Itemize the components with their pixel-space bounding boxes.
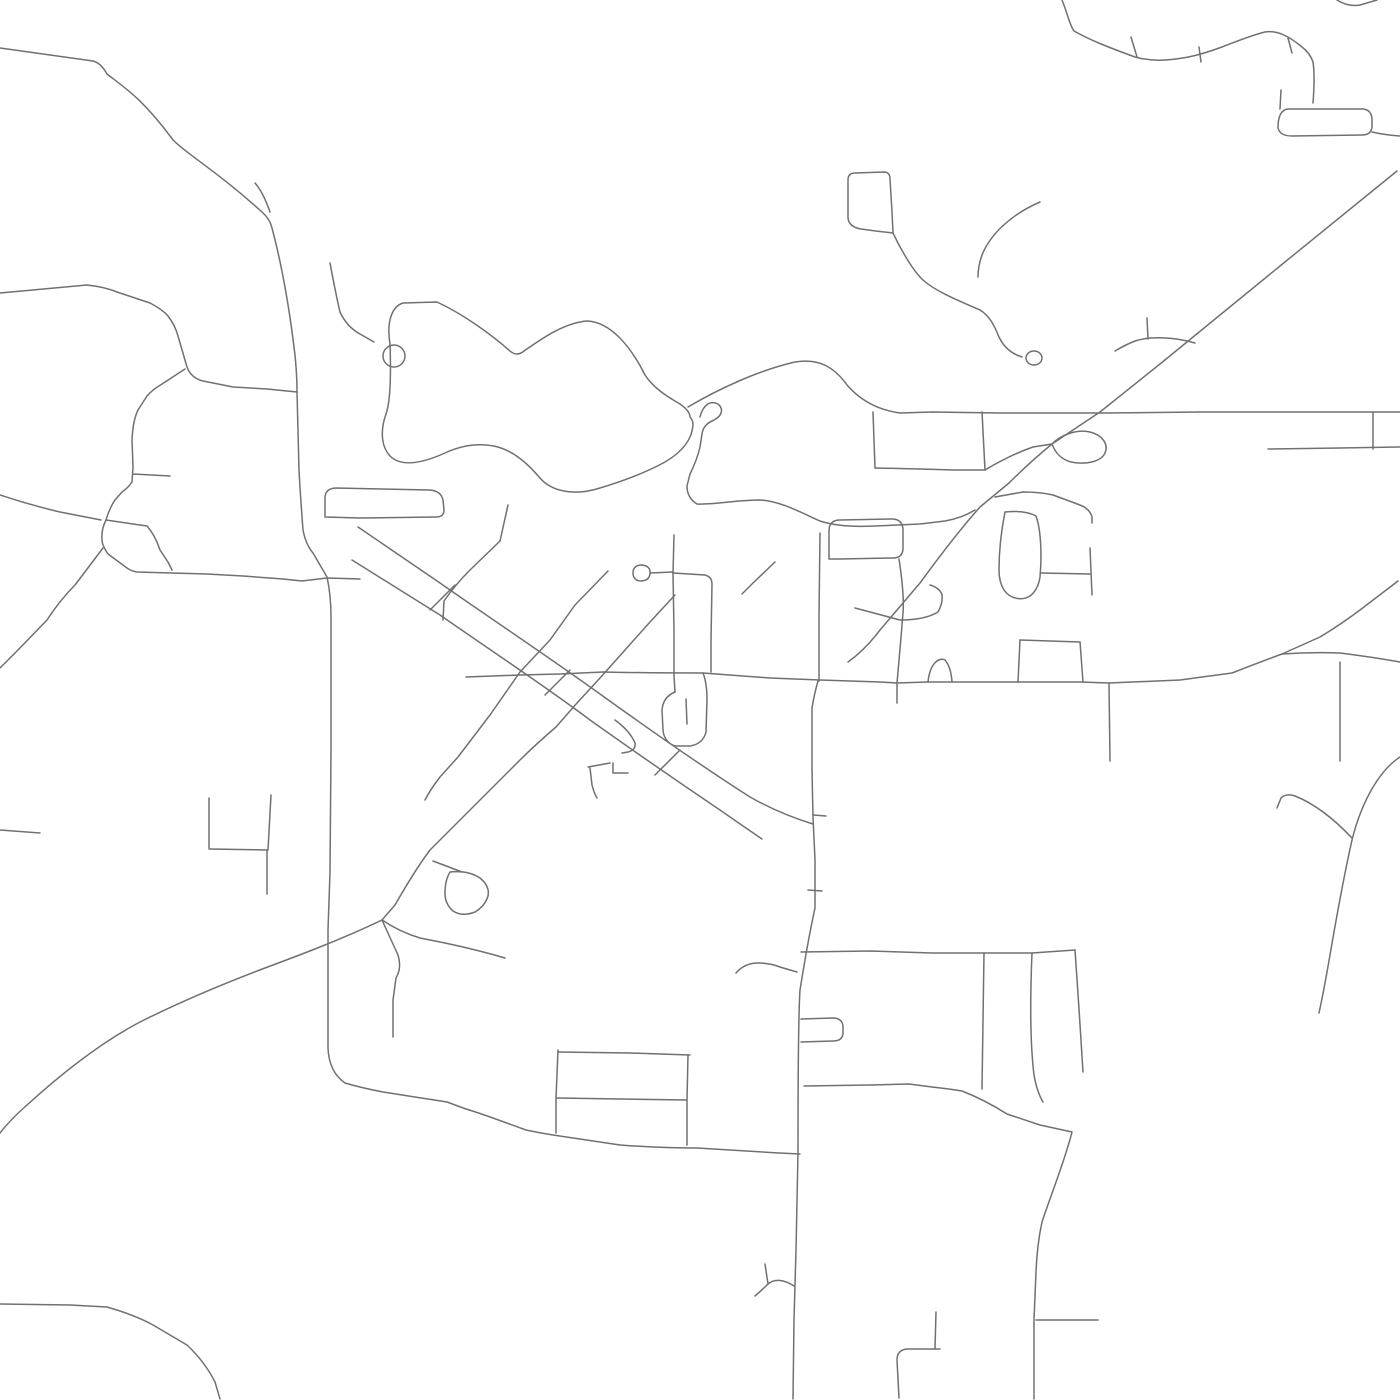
- p-loop-street: [662, 673, 707, 746]
- dead-end-curve-road: [978, 202, 1040, 277]
- wavy-road-tick-3: [1288, 38, 1292, 53]
- left-edge-lower-road: [0, 548, 103, 668]
- south-wiggle-street: [382, 920, 400, 1037]
- corridor-street-south: [352, 560, 762, 839]
- bottom-right-curve-road: [1319, 757, 1400, 1013]
- cross-street-2: [425, 571, 608, 800]
- se-blob-loop: [445, 872, 488, 915]
- se-blob-rung: [433, 861, 462, 872]
- lake-east-road: [688, 361, 1400, 413]
- sw-branch-road: [382, 920, 505, 958]
- top-wavy-road: [1062, 0, 1314, 103]
- ns-street-673: [673, 535, 675, 692]
- corridor-rung-3: [655, 750, 680, 775]
- junction-curve-road: [985, 444, 1052, 470]
- s-curve-end-circle: [1026, 351, 1042, 365]
- cross-street-1-ext: [500, 505, 508, 541]
- west-rounded-rect-loop: [325, 488, 444, 518]
- lake-loop-road: [382, 302, 693, 492]
- p-loop-stub: [686, 699, 687, 724]
- ring-oval-loop: [633, 565, 650, 581]
- vertical-rect-loop: [801, 1018, 843, 1042]
- block-right-street: [1080, 642, 1083, 682]
- north-vertical-street-b: [982, 412, 985, 470]
- north-vertical-street-a: [873, 412, 875, 468]
- top-right-arc: [1337, 0, 1377, 5]
- road-map-stage: [0, 0, 1400, 1400]
- vertical-stub-b: [808, 890, 822, 891]
- small-curl-street: [615, 720, 635, 753]
- main-east-west-road: [466, 653, 1400, 683]
- descender-street-3: [1075, 950, 1083, 1072]
- vertical-street-819: [819, 533, 820, 681]
- sw-bottom-road: [0, 1304, 220, 1399]
- arc-stub-street: [1147, 318, 1148, 339]
- culdesac-hook-street: [855, 585, 942, 620]
- junction-balloon-loop: [1052, 431, 1106, 463]
- ne-straight-highway: [848, 171, 1397, 662]
- cross-street-1: [443, 541, 500, 620]
- west-road: [0, 285, 297, 392]
- block-left-street: [1018, 640, 1020, 682]
- bottom-corner-road: [897, 1349, 940, 1398]
- south-block-vertical-1: [556, 1050, 558, 1133]
- wavy-road-tick-1: [1131, 37, 1137, 57]
- top-rect-loop: [848, 172, 893, 233]
- west-block-right-vertical: [268, 795, 271, 850]
- ring-access-street: [650, 572, 673, 573]
- west-block-horizontal: [209, 849, 267, 850]
- mid-north-south-street: [897, 559, 903, 703]
- se-merge-diagonal: [1282, 581, 1398, 654]
- bottom-right-hook: [1277, 795, 1352, 838]
- left-edge-upper-road: [0, 495, 101, 520]
- left-edge-stub: [0, 830, 40, 833]
- descender-street-2: [1031, 953, 1043, 1102]
- east-culdesac-loop: [999, 512, 1041, 599]
- main-north-south-road: [793, 681, 818, 1399]
- road-map-svg: [0, 0, 1400, 1400]
- wavy-road-tick-2: [1199, 47, 1201, 62]
- roadside-arch-loop: [928, 659, 952, 682]
- y-fork-branch: [755, 1280, 794, 1296]
- block-top-street: [1020, 640, 1080, 642]
- east-side-street: [995, 492, 1092, 523]
- ne-fragment-street: [742, 562, 775, 594]
- right-road-lower: [1268, 447, 1400, 449]
- f-street-top: [588, 763, 610, 767]
- west-stub-street: [133, 474, 170, 476]
- se-long-road: [804, 1084, 1072, 1399]
- south-stub-street: [1109, 683, 1110, 761]
- pentagon-inner-street: [106, 520, 172, 570]
- f-street-stem: [590, 768, 597, 798]
- sw-sweep-road: [0, 920, 382, 1133]
- ne-rect-loop: [1278, 109, 1372, 136]
- bottom-corner-tick: [935, 1312, 936, 1349]
- vertical-stub-a: [813, 815, 826, 816]
- f-street-arm: [613, 763, 628, 773]
- s-curve-road: [893, 233, 1022, 357]
- balloon-loop-street: [687, 403, 975, 527]
- east-loop-vertical: [1090, 548, 1092, 595]
- north-connector-street: [875, 468, 985, 470]
- ne-rect-stem: [1280, 90, 1281, 109]
- south-block-middle: [557, 1098, 687, 1100]
- corridor-rung-1: [430, 585, 455, 610]
- descender-street-1: [982, 953, 984, 1089]
- corner-street: [673, 573, 712, 672]
- east-horizontal-952: [801, 950, 1075, 953]
- squiggle-connector: [736, 963, 797, 973]
- nw-diagonal-main-road: [0, 48, 800, 1154]
- y-fork-tail: [765, 1264, 768, 1284]
- ne-rect-extension: [1372, 132, 1400, 136]
- east-loop-stub: [1041, 573, 1090, 574]
- south-block-top: [558, 1052, 690, 1055]
- pond-circle-loop: [383, 345, 405, 367]
- pond-connector-road: [330, 263, 374, 342]
